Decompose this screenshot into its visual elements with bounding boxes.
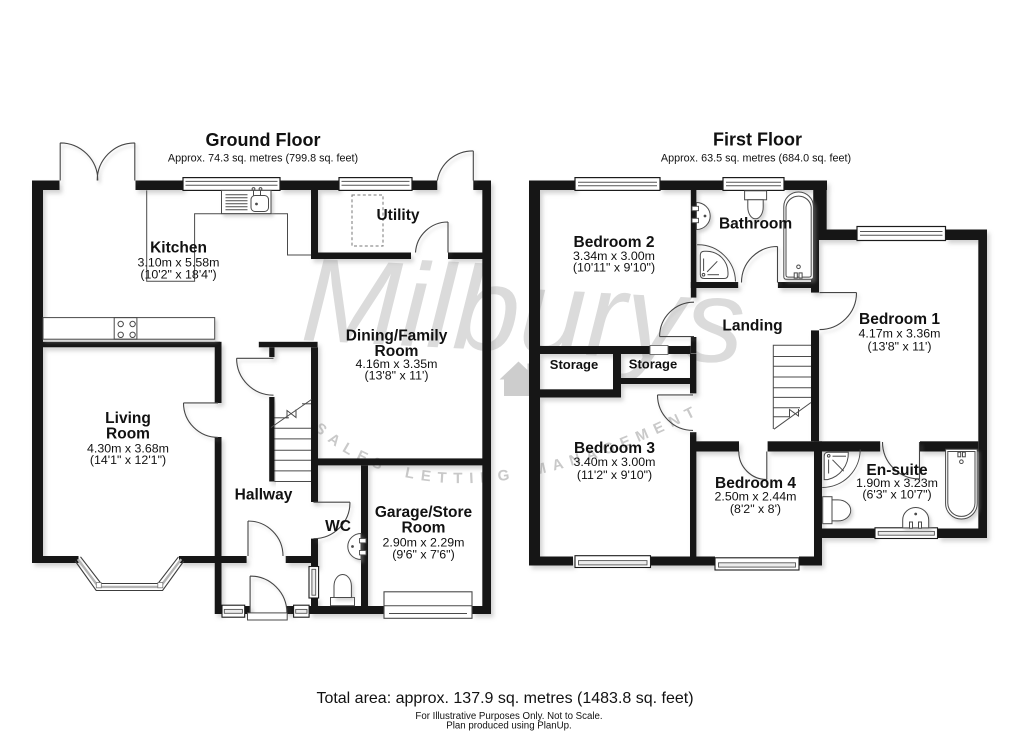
- svg-text:4.17m x 3.36m: 4.17m x 3.36m: [859, 327, 941, 341]
- svg-text:(10'11" x 9'10"): (10'11" x 9'10"): [573, 261, 655, 275]
- svg-text:(11'2" x 9'10"): (11'2" x 9'10"): [577, 468, 652, 482]
- svg-text:Ground Floor: Ground Floor: [206, 130, 321, 150]
- svg-text:Hallway: Hallway: [235, 487, 293, 504]
- svg-text:Room: Room: [106, 426, 150, 443]
- svg-text:Bedroom 1: Bedroom 1: [859, 311, 940, 328]
- svg-text:Approx. 63.5 sq. metres (684.0: Approx. 63.5 sq. metres (684.0 sq. feet): [661, 153, 851, 165]
- svg-text:Storage: Storage: [550, 357, 598, 372]
- svg-text:(10'2" x 18'4"): (10'2" x 18'4"): [140, 268, 216, 282]
- svg-text:WC: WC: [325, 518, 351, 535]
- svg-text:(13'8" x 11'): (13'8" x 11'): [868, 340, 932, 354]
- svg-text:3.40m x 3.00m: 3.40m x 3.00m: [574, 455, 656, 469]
- svg-text:Utility: Utility: [376, 207, 419, 224]
- svg-text:Kitchen: Kitchen: [150, 240, 207, 257]
- svg-text:Landing: Landing: [722, 318, 782, 335]
- svg-text:Living: Living: [105, 410, 151, 427]
- svg-text:Storage: Storage: [629, 357, 677, 372]
- svg-text:(8'2" x 8'): (8'2" x 8'): [730, 502, 781, 516]
- svg-text:Total area: approx. 137.9 sq.: Total area: approx. 137.9 sq. metres (14…: [316, 690, 693, 707]
- svg-text:First Floor: First Floor: [713, 130, 802, 150]
- svg-text:(9'6" x 7'6"): (9'6" x 7'6"): [392, 548, 454, 562]
- svg-text:Plan produced using PlanUp.: Plan produced using PlanUp.: [446, 721, 571, 732]
- svg-text:Bathroom: Bathroom: [719, 216, 792, 233]
- svg-text:(13'8" x 11'): (13'8" x 11'): [365, 369, 429, 383]
- svg-text:Garage/Store: Garage/Store: [375, 504, 473, 521]
- svg-text:(14'1" x 12'1"): (14'1" x 12'1"): [90, 453, 166, 467]
- svg-text:(6'3" x 10'7"): (6'3" x 10'7"): [862, 488, 931, 502]
- svg-text:Approx. 74.3 sq. metres (799.8: Approx. 74.3 sq. metres (799.8 sq. feet): [168, 153, 358, 165]
- svg-text:Room: Room: [402, 520, 446, 537]
- svg-text:Dining/Family: Dining/Family: [346, 328, 448, 345]
